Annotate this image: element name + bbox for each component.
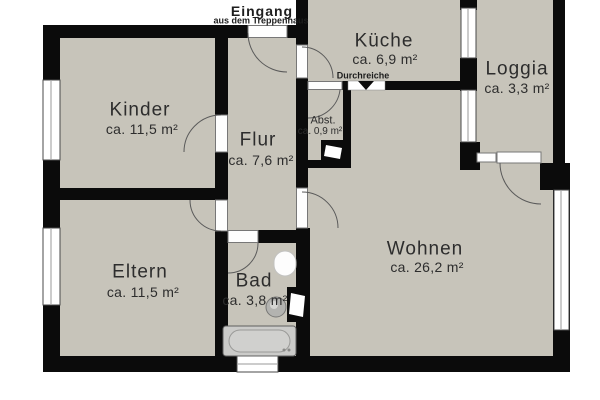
room-label-flur: Flur <box>240 131 277 150</box>
window-wohnen-loggia <box>461 90 476 142</box>
pass-through-opening <box>348 81 385 90</box>
room-label-kueche: Küche <box>355 32 414 51</box>
window-wohnen-right <box>554 190 569 330</box>
wall-kinder-eltern <box>60 188 228 200</box>
durchreiche-label: Durchreiche <box>337 72 390 81</box>
window-bad <box>237 356 278 372</box>
room-area-kinder: ca. 11,5 m² <box>106 122 178 136</box>
bathtub-icon <box>223 326 296 356</box>
room-label-kinder: Kinder <box>110 101 171 120</box>
window-kinder <box>43 80 60 160</box>
window-kueche-loggia <box>461 8 476 58</box>
toilet-icon <box>274 251 296 276</box>
wall-outer-bottom <box>43 356 570 372</box>
window-eltern <box>43 228 60 305</box>
wall-kinder-flur <box>215 38 228 190</box>
room-label-abst: Abst. <box>310 116 335 127</box>
wall-loggia-corner <box>540 163 554 190</box>
shaft-icon-bad <box>287 287 308 322</box>
floor-plan: Eingang aus dem Treppenhaus Kinder ca. 1… <box>0 0 600 400</box>
wall-loggia-right <box>553 0 565 166</box>
room-area-wohnen: ca. 26,2 m² <box>390 260 463 274</box>
wall-outer-left <box>43 25 60 372</box>
room-area-kueche: ca. 6,9 m² <box>352 52 417 66</box>
room-label-eltern: Eltern <box>112 263 168 282</box>
shaft-icon-abst <box>321 140 347 163</box>
room-area-loggia: ca. 3,3 m² <box>484 81 549 95</box>
room-area-eltern: ca. 11,5 m² <box>107 285 179 299</box>
room-label-bad: Bad <box>236 272 273 291</box>
entrance-subtitle: aus dem Treppenhaus <box>213 17 308 26</box>
room-label-wohnen: Wohnen <box>387 240 463 259</box>
room-area-abst: ca. 0,9 m² <box>298 127 342 137</box>
room-area-flur: ca. 7,6 m² <box>228 153 293 167</box>
room-area-bad: ca. 3,8 m² <box>222 293 287 307</box>
room-label-loggia: Loggia <box>485 60 548 79</box>
